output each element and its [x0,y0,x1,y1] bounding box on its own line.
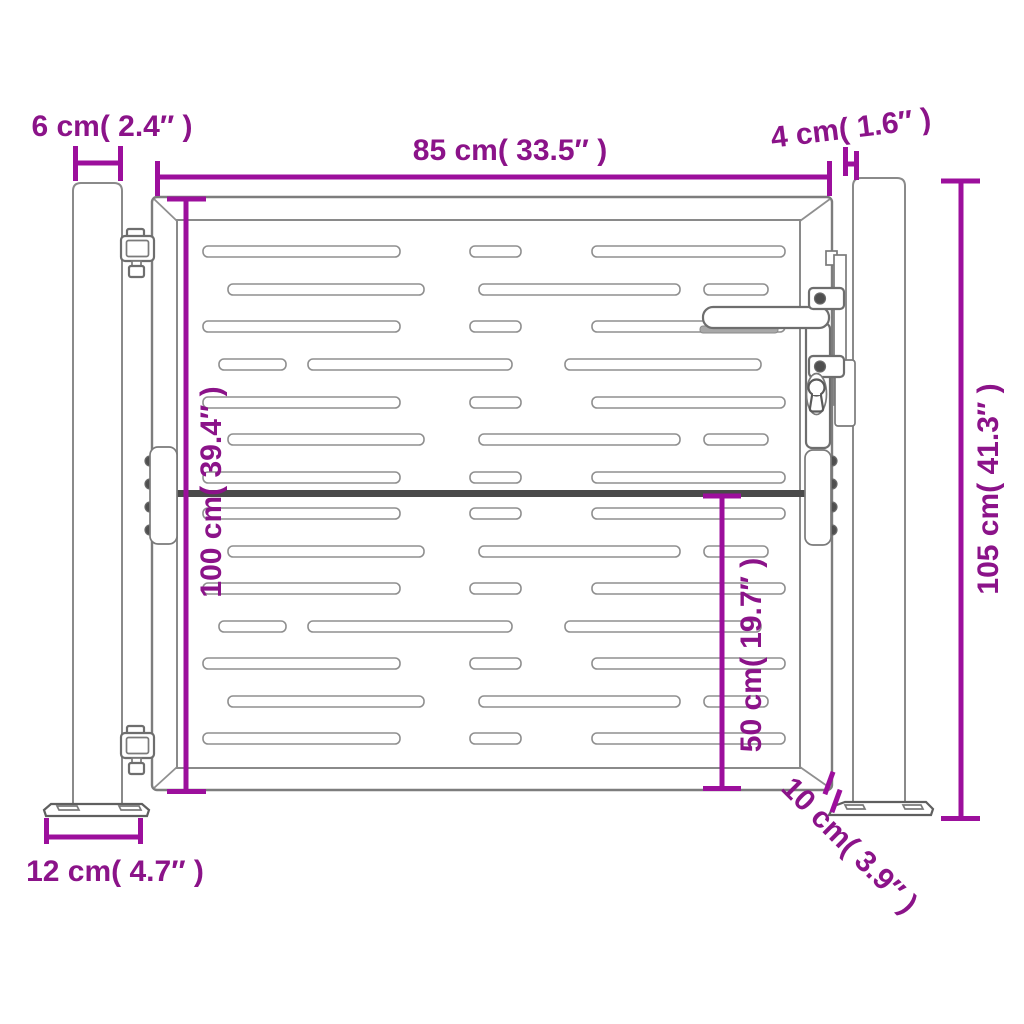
dim-line-base-width [46,818,141,844]
gate-slot [704,284,768,295]
gate-slot [228,546,424,557]
gate-slot [470,397,521,408]
hinge-top [121,229,154,277]
base-plate-slot [845,805,865,809]
handle-lever [703,307,829,328]
gate-slot [479,284,680,295]
dim-line-gap-width [845,147,857,180]
base-plate-slot [57,806,79,810]
gate-slot [470,472,521,483]
keyhole-icon [807,374,827,415]
gate-slot [203,397,400,408]
gate-slot [308,621,512,632]
gate-dimension-diagram: 6 cm( 2.4″ ) 85 cm( 33.5″ ) 4 cm( 1.6″ )… [0,0,1024,1024]
gate-slot [470,508,521,519]
gate-slot [203,583,400,594]
base-plate-slot [903,805,923,809]
hinge-bottom [121,726,154,774]
gate-slot [704,546,768,557]
gate-slot [479,434,680,445]
gate-slot [470,583,521,594]
gate-slot [470,658,521,669]
dim-label-gate-height: 100 cm( 39.4″ ) [197,386,227,597]
dim-line-post-width [75,146,121,181]
gate-slot [470,246,521,257]
hinge-middle-plate [145,447,177,544]
gate-slot [470,733,521,744]
gate-slot [592,508,785,519]
gate-slot [228,434,424,445]
gate-slot [308,359,512,370]
gate-slot [203,472,400,483]
gate-slot [565,359,761,370]
gate-slot [479,546,680,557]
gate-slot [203,321,400,332]
dim-label-lower-section-height: 50 cm( 19.7″ ) [737,558,767,752]
gate-slot [219,359,286,370]
gate-slot [592,397,785,408]
dim-label-post-height: 105 cm( 41.3″ ) [974,383,1004,594]
dim-label-gate-width: 85 cm( 33.5″ ) [413,136,607,166]
gate-slot [203,508,400,519]
right-post [853,178,905,806]
left-post [73,183,122,806]
gate-slot [203,733,400,744]
gate-slot [228,696,424,707]
gate-slot [565,621,761,632]
dim-label-base-width: 12 cm( 4.7″ ) [26,857,204,887]
dim-label-post-width: 6 cm( 2.4″ ) [31,112,192,142]
gate-slot [479,696,680,707]
gate-slot [592,246,785,257]
gate-slot [704,434,768,445]
base-plate-slot [119,806,141,810]
gate-slot [592,472,785,483]
gate-slot [219,621,286,632]
gate-slot [203,658,400,669]
keeper-clamp-top [809,288,844,309]
gate-slot [203,246,400,257]
gate-slot [470,321,521,332]
gate-slot [228,284,424,295]
